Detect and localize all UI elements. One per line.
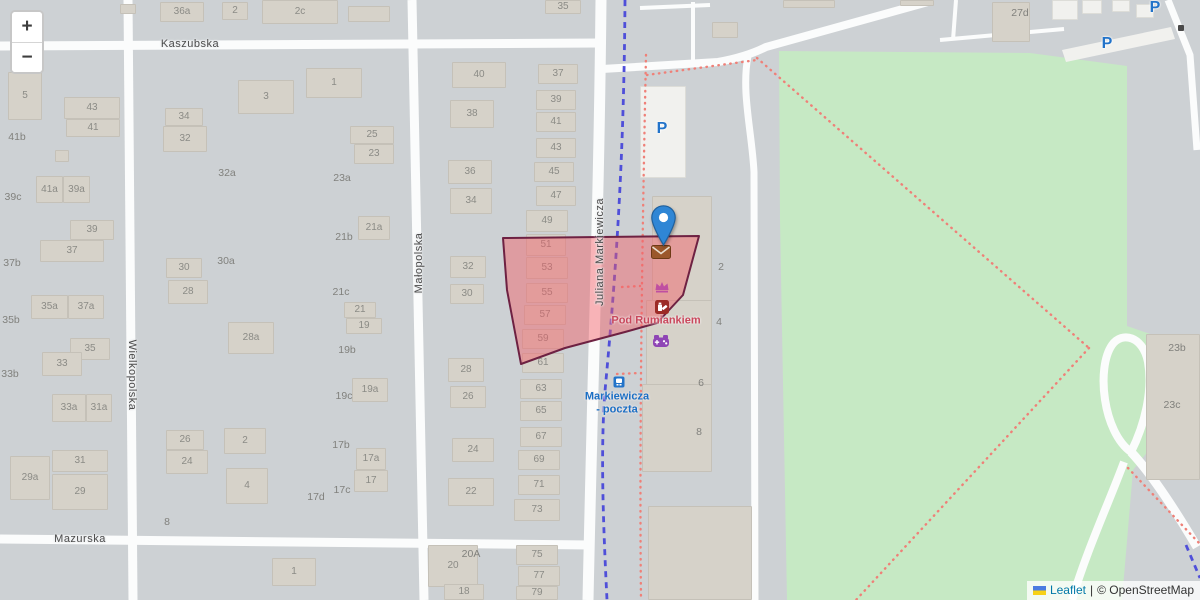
building (992, 2, 1030, 42)
building-17: 17 (354, 470, 388, 492)
building-2c: 2c (262, 0, 338, 24)
area-label-37b: 37b (3, 257, 21, 269)
building-number: 35 (84, 344, 95, 354)
building-number: 34 (465, 196, 476, 206)
building (783, 0, 835, 8)
building-number: 31 (74, 456, 85, 466)
building-37a: 37a (68, 295, 104, 319)
building-number: 39 (550, 95, 561, 105)
poi-label-line: - poczta (596, 403, 638, 415)
building-number: 1 (291, 567, 297, 577)
building-number: 45 (548, 167, 559, 177)
building-number: 32 (462, 262, 473, 272)
building-57: 57 (524, 305, 566, 325)
overlay-layer (0, 0, 1200, 600)
parking-icon: P (657, 121, 668, 137)
area-label-35b: 35b (2, 314, 20, 326)
building (348, 6, 390, 22)
building-number: 61 (537, 358, 548, 368)
building-21: 21 (344, 302, 376, 318)
road-loop (1104, 337, 1150, 452)
building-number: 25 (366, 130, 377, 140)
building-24: 24 (452, 438, 494, 462)
building-number: 37 (66, 246, 77, 256)
building-73: 73 (514, 499, 560, 521)
building-number: 24 (467, 445, 478, 455)
building-number: 63 (535, 384, 546, 394)
building-number: 79 (531, 588, 542, 598)
building-number: 33 (56, 359, 67, 369)
street-label-wielkopolska: Wielkopolska (126, 340, 138, 411)
building-number: 5 (22, 91, 28, 101)
building (120, 4, 136, 14)
roads (0, 0, 1197, 600)
area-label-19b: 19b (338, 344, 356, 356)
building (646, 300, 712, 386)
building-25: 25 (350, 126, 394, 144)
building-number: 23 (368, 149, 379, 159)
building-37: 37 (40, 240, 104, 262)
building-61: 61 (522, 353, 564, 373)
building-20: 20 (428, 545, 478, 587)
area-label-27d: 27d (1011, 7, 1029, 19)
building-2: 2 (224, 428, 266, 454)
building-2: 2 (222, 2, 248, 20)
building-34: 34 (165, 108, 203, 126)
area-label-8: 8 (164, 516, 170, 528)
crown-icon (654, 281, 670, 294)
area-label-2: 2 (718, 261, 724, 273)
area-label-21b: 21b (335, 231, 353, 243)
building-number: 18 (458, 587, 469, 597)
building-65: 65 (520, 401, 562, 421)
building-28: 28 (168, 280, 208, 304)
road-mazurska (0, 539, 590, 545)
zoom-in-button[interactable]: + (12, 12, 42, 42)
parking-icon: P (1150, 0, 1161, 16)
building-55: 55 (526, 283, 568, 303)
building-number: 49 (541, 216, 552, 226)
road-markiewicza (588, 0, 601, 600)
building-26: 26 (450, 386, 486, 408)
icons-layer: PPP (0, 0, 1200, 600)
building-number: 65 (535, 406, 546, 416)
area-label-41b: 41b (8, 131, 26, 143)
building-38: 38 (450, 100, 494, 128)
bus-stop-icon (614, 377, 625, 388)
parking-icon: P (1102, 36, 1113, 52)
building (640, 86, 686, 178)
building (1112, 0, 1130, 12)
footpaths-dotted (617, 55, 1199, 600)
area-label-6: 6 (698, 377, 704, 389)
building-number: 29 (74, 487, 85, 497)
building-number: 30 (178, 263, 189, 273)
building-59: 59 (522, 329, 564, 349)
building-36a: 36a (160, 2, 204, 22)
building-number: 77 (533, 571, 544, 581)
building-number: 2 (232, 6, 238, 16)
building-31: 31 (52, 450, 108, 472)
building-39: 39 (70, 220, 114, 240)
building-number: 51 (540, 240, 551, 250)
street-label-mazurska: Mazurska (54, 533, 106, 545)
poi-label-bus-stop-name: Markiewicza- poczta (585, 390, 649, 415)
building-32: 32 (163, 126, 207, 152)
building-number: 36a (174, 7, 191, 17)
building-19a: 19a (352, 378, 388, 402)
building-35a: 35a (31, 295, 68, 319)
road-park-west (746, 56, 755, 600)
building-number: 69 (533, 455, 544, 465)
building-number: 17 (365, 476, 376, 486)
building (712, 22, 738, 38)
building-77: 77 (518, 566, 560, 586)
area-label-20A: 20A (462, 548, 481, 560)
attribution-divider: | (1090, 583, 1093, 597)
building-number: 34 (178, 112, 189, 122)
building-18: 18 (444, 584, 484, 600)
building-3: 3 (238, 80, 294, 114)
area-label-17b: 17b (332, 439, 350, 451)
street-label-malopolska: Małopolska (413, 233, 425, 294)
area-label-19c: 19c (336, 390, 353, 402)
openstreetmap-link[interactable]: © OpenStreetMap (1097, 583, 1194, 597)
area-label-30a: 30a (217, 255, 235, 267)
zoom-out-button[interactable]: − (12, 42, 42, 72)
tram-line (603, 0, 1200, 600)
ukraine-flag-icon (1033, 586, 1046, 595)
building-number: 33a (61, 403, 78, 413)
building-number: 2c (295, 7, 306, 17)
area-label-17c: 17c (334, 484, 351, 496)
poi-label-line: Pod Rumiankiem (611, 315, 700, 327)
area-label-8: 8 (696, 426, 702, 438)
building-number: 21 (354, 305, 365, 315)
building-number: 75 (531, 550, 542, 560)
road-malopolska (412, 0, 424, 600)
building (642, 384, 712, 472)
building-35: 35 (545, 0, 581, 14)
building-75: 75 (516, 545, 558, 565)
building-number: 39 (86, 225, 97, 235)
building-number: 26 (179, 435, 190, 445)
building-5: 5 (8, 72, 42, 120)
building-53: 53 (526, 257, 568, 279)
building-number: 35a (41, 302, 58, 312)
map-canvas[interactable]: 5434141a39a393735a37a353333a31a3129a2936… (0, 0, 1200, 600)
building (1136, 4, 1154, 18)
building-number: 71 (533, 480, 544, 490)
area-label-23a: 23a (333, 172, 351, 184)
building-45: 45 (534, 162, 574, 182)
building-number: 41 (87, 123, 98, 133)
road-topright-diagonal (1168, 0, 1197, 150)
building-number: 43 (86, 103, 97, 113)
building-number: 29a (22, 473, 39, 483)
building-number: 53 (541, 263, 552, 273)
building-47: 47 (536, 186, 576, 206)
poi-label-pod-rumiankiem: Pod Rumiankiem (611, 315, 700, 328)
area-label-4: 4 (716, 316, 722, 328)
building-32: 32 (450, 256, 486, 278)
building-number: 35 (557, 2, 568, 12)
building-number: 32 (179, 134, 190, 144)
parking-lot-strip (1062, 27, 1175, 62)
building-26: 26 (166, 430, 204, 450)
building-number: 24 (181, 457, 192, 467)
building-30: 30 (450, 284, 484, 304)
building-number: 3 (263, 92, 269, 102)
building (1052, 0, 1078, 20)
area-label-33b: 33b (1, 368, 19, 380)
building-number: 19a (362, 385, 379, 395)
building-43: 43 (536, 138, 576, 158)
building-number: 26 (462, 392, 473, 402)
building-37: 37 (538, 64, 578, 84)
building-number: 20 (447, 561, 458, 571)
building-33a: 33a (52, 394, 86, 422)
building-41: 41 (66, 119, 120, 137)
gate-icon (1178, 25, 1184, 31)
building-number: 40 (473, 70, 484, 80)
building-number: 31a (91, 403, 108, 413)
building-number: 39a (68, 185, 85, 195)
building-63: 63 (520, 379, 562, 399)
park-area (779, 51, 1165, 600)
building-40: 40 (452, 62, 506, 88)
attribution-bar: Leaflet | © OpenStreetMap (1027, 581, 1200, 600)
building-number: 28a (243, 333, 260, 343)
building-51: 51 (526, 234, 566, 256)
building-41a: 41a (36, 176, 63, 203)
building (648, 506, 752, 600)
video-games-icon (653, 335, 670, 348)
area-label-32a: 32a (218, 167, 236, 179)
street-label-juliana-markiewicza: Juliana Markiewicza (594, 198, 606, 306)
area-label-23c: 23c (1164, 399, 1181, 411)
building-29: 29 (52, 474, 108, 510)
street-label-kaszubska: Kaszubska (161, 38, 219, 50)
building-43: 43 (64, 97, 120, 119)
area-label-23b: 23b (1168, 342, 1186, 354)
building-19: 19 (346, 318, 382, 334)
poi-label-line: Markiewicza (585, 390, 649, 402)
building-23: 23 (354, 144, 394, 164)
building-number: 17a (363, 454, 380, 464)
zoom-control: + − (10, 10, 44, 74)
road-wielkopolska (128, 0, 133, 600)
buildings-layer: 5434141a39a393735a37a353333a31a3129a2936… (0, 0, 1200, 600)
labels-layer: 41b39c37b35b33b32a30a23a21b21c19b19c17b1… (0, 0, 1200, 600)
building-4: 4 (226, 468, 268, 504)
map-marker-pin[interactable] (651, 205, 676, 251)
building-number: 21a (366, 223, 383, 233)
building-number: 4 (244, 481, 250, 491)
building-number: 47 (550, 191, 561, 201)
building-34: 34 (450, 188, 492, 214)
building-number: 67 (535, 432, 546, 442)
area-label-21c: 21c (333, 286, 350, 298)
building-79: 79 (516, 586, 558, 600)
building-1: 1 (272, 558, 316, 586)
building-39a: 39a (63, 176, 90, 203)
building-49: 49 (526, 210, 568, 232)
building-number: 37a (78, 302, 95, 312)
building-number: 2 (242, 436, 248, 446)
building-69: 69 (518, 450, 560, 470)
building-number: 22 (465, 487, 476, 497)
building-1: 1 (306, 68, 362, 98)
building-number: 28 (182, 287, 193, 297)
building-number: 28 (460, 365, 471, 375)
building-number: 43 (550, 143, 561, 153)
building-number: 73 (531, 505, 542, 515)
building-39: 39 (536, 90, 576, 110)
base-map-layer (0, 0, 1200, 600)
building-22: 22 (448, 478, 494, 506)
building-number: 19 (358, 321, 369, 331)
building-35: 35 (70, 338, 110, 360)
building-number: 55 (541, 288, 552, 298)
building-number: 36 (464, 167, 475, 177)
building-28: 28 (448, 358, 484, 382)
leaflet-link[interactable]: Leaflet (1050, 583, 1086, 597)
building-28a: 28a (228, 322, 274, 354)
building-71: 71 (518, 475, 560, 495)
building-number: 59 (537, 334, 548, 344)
building-number: 1 (331, 78, 337, 88)
building (900, 0, 934, 6)
building-21a: 21a (358, 216, 390, 240)
chemist-icon (655, 300, 669, 314)
road-northeast-curve (602, 2, 928, 69)
area-label-39c: 39c (5, 191, 22, 203)
building-33: 33 (42, 352, 82, 376)
area-label-17d: 17d (307, 491, 325, 503)
building-24: 24 (166, 450, 208, 474)
building (1082, 0, 1102, 14)
building-36: 36 (448, 160, 492, 184)
building-number: 30 (461, 289, 472, 299)
building-number: 37 (552, 69, 563, 79)
building-31a: 31a (86, 394, 112, 422)
building-67: 67 (520, 427, 562, 447)
road-kaszubska (0, 43, 600, 46)
building (1146, 334, 1200, 480)
building (55, 150, 69, 162)
building-number: 41a (41, 185, 58, 195)
building-30: 30 (166, 258, 202, 278)
highlight-polygon (503, 236, 699, 364)
building-17a: 17a (356, 448, 386, 470)
building-41: 41 (536, 112, 576, 132)
building-29a: 29a (10, 456, 50, 500)
building-number: 38 (466, 109, 477, 119)
building-number: 41 (550, 117, 561, 127)
building-number: 57 (539, 310, 550, 320)
